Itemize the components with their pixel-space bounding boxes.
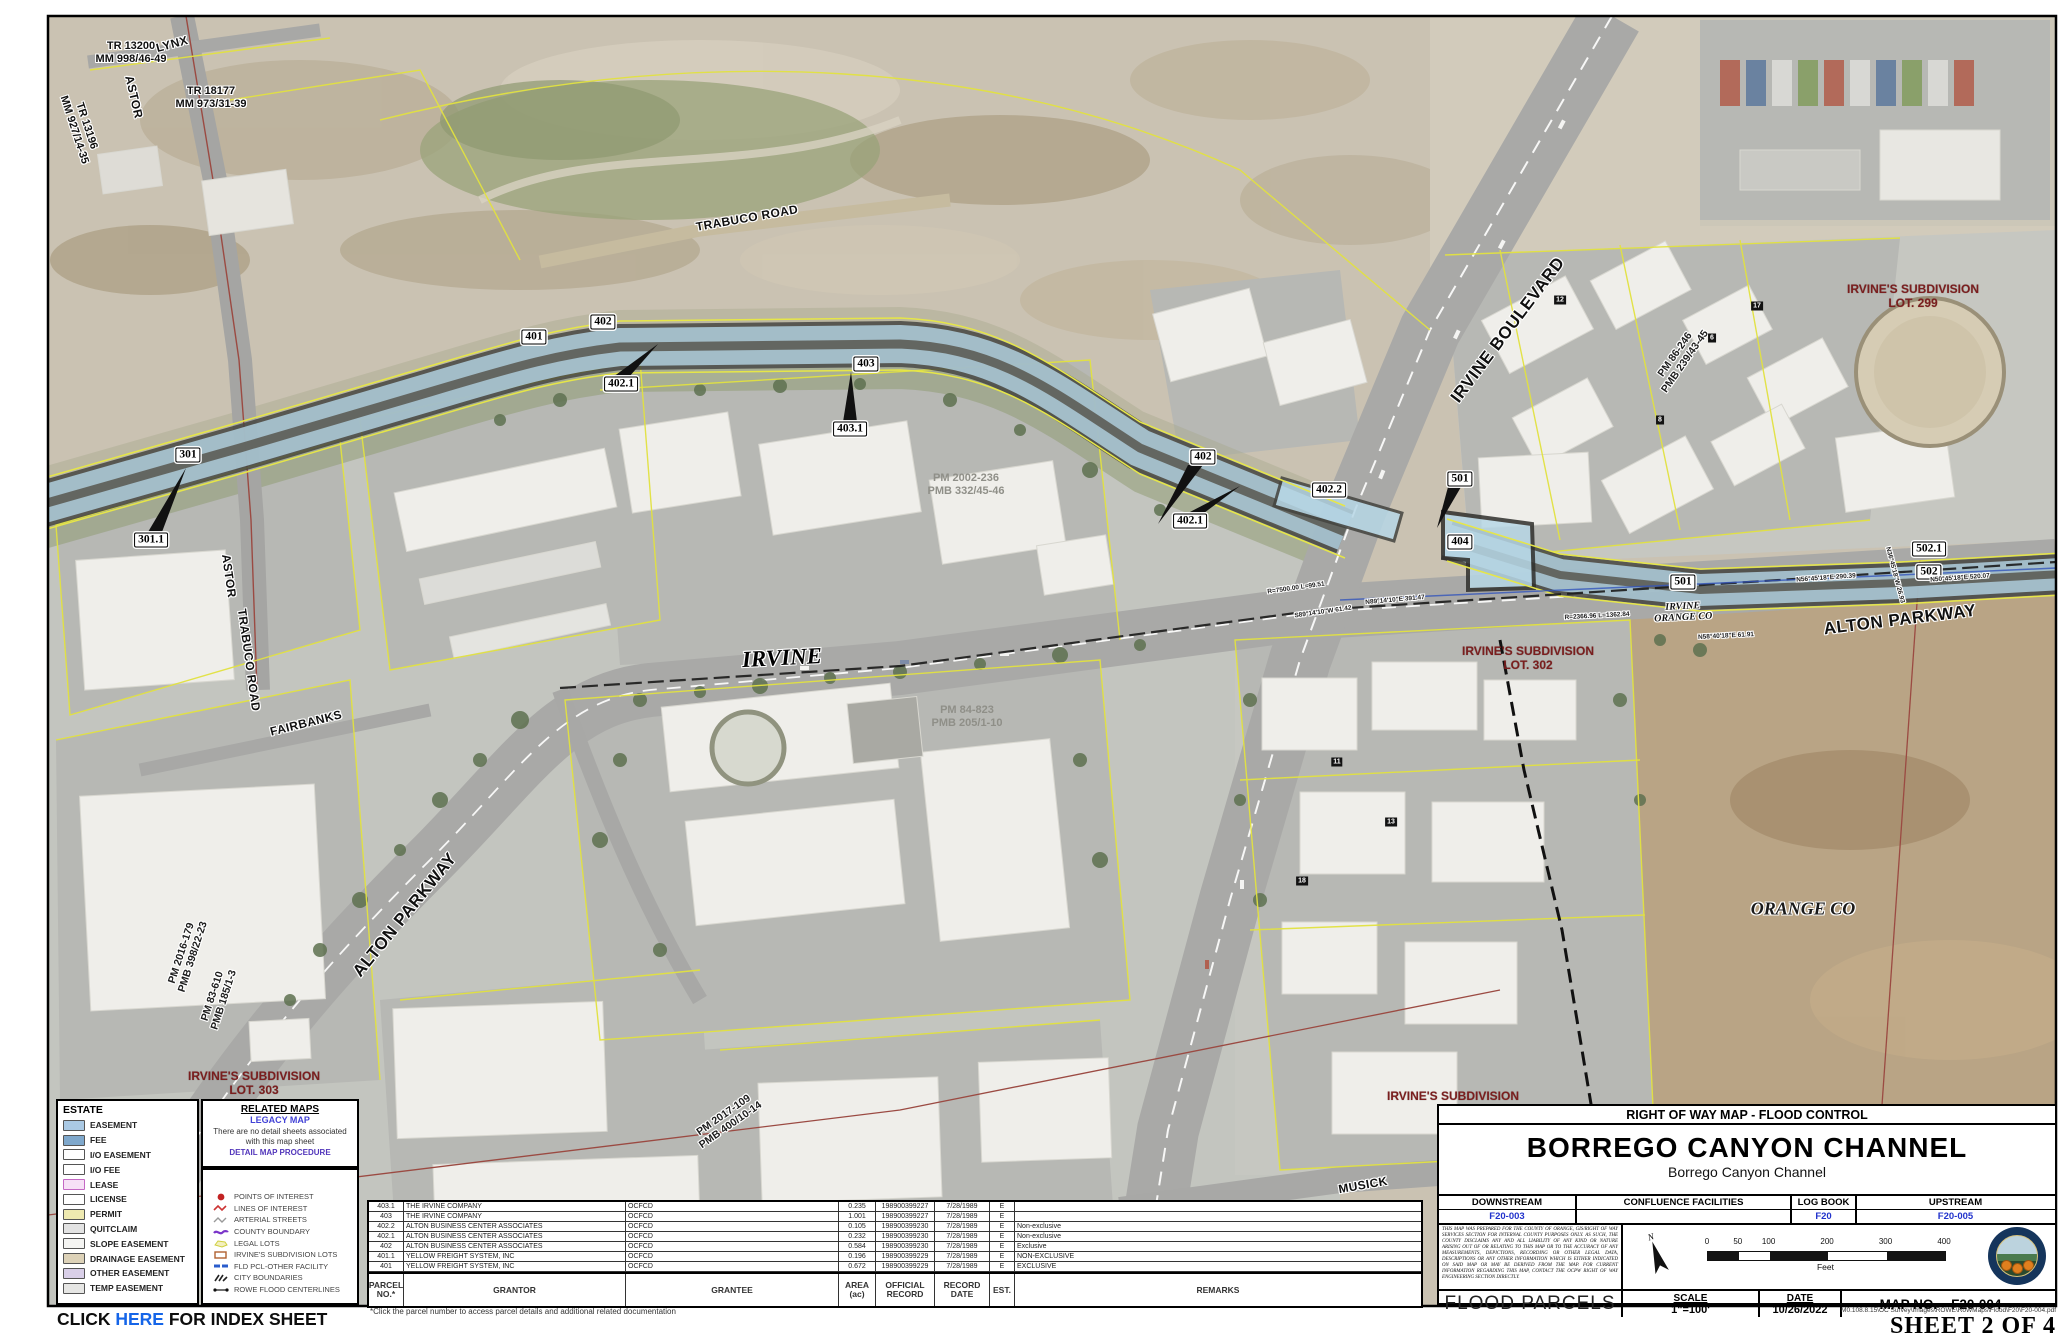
table-row: 401.1YELLOW FREIGHT SYSTEM, INCOCFCD0.19… bbox=[369, 1252, 1421, 1262]
est-cell: E bbox=[990, 1202, 1015, 1212]
estate-item-label: OTHER EASEMENT bbox=[90, 1268, 169, 1278]
estate-item: LEASE bbox=[62, 1177, 193, 1192]
channel-title: BORREGO CANYON CHANNEL bbox=[1439, 1132, 2055, 1164]
lot-marker: 17 bbox=[1751, 302, 1763, 311]
estate-swatch bbox=[63, 1149, 85, 1160]
table-row: 403THE IRVINE COMPANYOCFCD1.001198900399… bbox=[369, 1212, 1421, 1222]
estate-item: LICENSE bbox=[62, 1192, 193, 1207]
parcel-label-402.1[interactable]: 402.1 bbox=[1173, 514, 1207, 529]
grantor-cell: ALTON BUSINESS CENTER ASSOCIATES bbox=[404, 1222, 626, 1232]
record-date-cell: 7/28/1989 bbox=[935, 1202, 990, 1212]
estate-item: SLOPE EASEMENT bbox=[62, 1236, 193, 1251]
official-record-link[interactable]: 198900399230 bbox=[876, 1232, 935, 1242]
table-row: 401YELLOW FREIGHT SYSTEM, INCOCFCD0.6721… bbox=[369, 1262, 1421, 1272]
sheet-content-type: FLOOD PARCELS bbox=[1444, 1293, 1615, 1315]
area-cell: 0.584 bbox=[839, 1242, 876, 1252]
street-label: FAIRBANKS bbox=[269, 707, 344, 738]
grantor-cell: YELLOW FREIGHT SYSTEM, INC bbox=[404, 1262, 626, 1272]
symbol-item: ROWE FLOOD CENTERLINES bbox=[213, 1284, 353, 1296]
grantor-cell: ALTON BUSINESS CENTER ASSOCIATES bbox=[404, 1232, 626, 1242]
estate-item-label: LICENSE bbox=[90, 1194, 127, 1204]
date-value: 10/26/2022 bbox=[1772, 1304, 1827, 1316]
grantor-cell: THE IRVINE COMPANY bbox=[404, 1212, 626, 1222]
parcel-map-ref: PM 2017-109 PMB 400/10-14 bbox=[690, 1089, 764, 1151]
scalebar-segment bbox=[1708, 1252, 1739, 1260]
record-date-cell: 7/28/1989 bbox=[935, 1212, 990, 1222]
parcel-label-501[interactable]: 501 bbox=[1670, 575, 1695, 590]
scalebar-segment bbox=[1887, 1252, 1945, 1260]
remarks-cell: Exclusive bbox=[1015, 1242, 1421, 1252]
street-label: TRABUCO ROAD bbox=[235, 608, 263, 712]
area-cell: 1.001 bbox=[839, 1212, 876, 1222]
est-cell: E bbox=[990, 1252, 1015, 1262]
est-cell: E bbox=[990, 1222, 1015, 1232]
est-cell: E bbox=[990, 1212, 1015, 1222]
parcel-link[interactable]: 402.1 bbox=[369, 1232, 404, 1242]
estate-swatch bbox=[63, 1179, 85, 1190]
symbols-legend: POINTS OF INTERESTLINES OF INTERESTARTER… bbox=[201, 1168, 359, 1305]
street-label: TRABUCO ROAD bbox=[695, 202, 799, 234]
related-maps-panel: RELATED MAPS LEGACY MAP There are no det… bbox=[201, 1099, 359, 1168]
north-arrow-icon: N bbox=[1639, 1229, 1673, 1277]
remarks-cell bbox=[1015, 1202, 1421, 1212]
grantee-cell: OCFCD bbox=[626, 1222, 839, 1232]
parcel-link[interactable]: 401.1 bbox=[369, 1252, 404, 1262]
subdivision-label: IRVINE'S SUBDIVISION bbox=[1387, 1089, 1519, 1103]
estate-item: DRAINAGE EASEMENT bbox=[62, 1251, 193, 1266]
symbol-item-label: FLD PCL-OTHER FACILITY bbox=[234, 1262, 328, 1271]
bearing-text: N58°40'18"E 61.91 bbox=[1698, 631, 1754, 641]
estate-swatch bbox=[63, 1223, 85, 1234]
subdivision-label: IRVINE'S SUBDIVISION LOT. 302 bbox=[1462, 644, 1594, 672]
estate-item: OTHER EASEMENT bbox=[62, 1266, 193, 1281]
estate-items: EASEMENTFEEI/O EASEMENTI/O FEELEASELICEN… bbox=[62, 1118, 193, 1296]
symbol-items: POINTS OF INTERESTLINES OF INTERESTARTER… bbox=[213, 1191, 353, 1295]
symbol-item-label: IRVINE'S SUBDIVISION LOTS bbox=[234, 1250, 337, 1259]
parcel-link[interactable]: 402.2 bbox=[369, 1222, 404, 1232]
lines-icon bbox=[213, 1203, 231, 1213]
symbol-item: IRVINE'S SUBDIVISION LOTS bbox=[213, 1249, 353, 1261]
related-maps-title: RELATED MAPS bbox=[208, 1104, 352, 1115]
column-header: RECORD DATE bbox=[935, 1274, 990, 1306]
subdiv-icon bbox=[213, 1250, 231, 1260]
estate-swatch bbox=[63, 1253, 85, 1264]
sheet-number: SHEET 2 OF 4 bbox=[1890, 1313, 2056, 1340]
table-row: 402ALTON BUSINESS CENTER ASSOCIATESOCFCD… bbox=[369, 1242, 1421, 1252]
county-label: ORANGE CO bbox=[1751, 899, 1856, 920]
bearing-text: N36°45'18"W 26.93 bbox=[1884, 546, 1906, 604]
estate-item-label: I/O FEE bbox=[90, 1165, 120, 1175]
table-row: 403.1THE IRVINE COMPANYOCFCD0.2351989003… bbox=[369, 1202, 1421, 1212]
index-link-prefix: CLICK bbox=[57, 1309, 115, 1329]
title-block: RIGHT OF WAY MAP - FLOOD CONTROL BORREGO… bbox=[1437, 1104, 2057, 1305]
scalebar-tick: 200 bbox=[1820, 1237, 1833, 1246]
table-header-row: PARCEL NO.*GRANTORGRANTEEAREA (ac)OFFICI… bbox=[369, 1272, 1421, 1306]
symbol-item: COUNTY BOUNDARY bbox=[213, 1226, 353, 1238]
parcel-label-402[interactable]: 402 bbox=[1190, 450, 1215, 465]
detail-map-procedure-link[interactable]: DETAIL MAP PROCEDURE bbox=[208, 1148, 352, 1157]
scalebar-tick: 300 bbox=[1879, 1237, 1892, 1246]
scalebar-tick: 50 bbox=[1733, 1237, 1742, 1246]
estate-swatch bbox=[63, 1283, 85, 1294]
symbol-item-label: ROWE FLOOD CENTERLINES bbox=[234, 1285, 340, 1294]
estate-item-label: LEASE bbox=[90, 1180, 118, 1190]
subdivision-label: IRVINE'S SUBDIVISION LOT. 299 bbox=[1847, 282, 1979, 310]
scale-bar bbox=[1707, 1251, 1946, 1261]
lot-marker: 12 bbox=[1554, 296, 1566, 305]
estate-item-label: SLOPE EASEMENT bbox=[90, 1239, 168, 1249]
fldpcl-icon bbox=[213, 1261, 231, 1271]
area-cell: 0.235 bbox=[839, 1202, 876, 1212]
index-sheet-link-row: CLICK HERE FOR INDEX SHEET bbox=[57, 1309, 327, 1330]
date-label: DATE bbox=[1787, 1293, 1813, 1304]
remarks-cell: NON-EXCLUSIVE bbox=[1015, 1252, 1421, 1262]
street-label: ALTON PARKWAY bbox=[349, 849, 461, 981]
legal-icon bbox=[213, 1238, 231, 1248]
grantee-cell: OCFCD bbox=[626, 1242, 839, 1252]
parcel-map-ref: PM 2016-179 PMB 398/22-23 bbox=[164, 916, 210, 993]
scale-value: 1"=100' bbox=[1671, 1304, 1710, 1316]
scalebar-unit: Feet bbox=[1707, 1262, 1944, 1272]
symbol-item: POINTS OF INTEREST bbox=[213, 1191, 353, 1203]
street-label: ALTON PARKWAY bbox=[1823, 601, 1978, 640]
symbol-item-label: COUNTY BOUNDARY bbox=[234, 1227, 310, 1236]
parcel-map-ref: PM 83-610 PMB 185/1-3 bbox=[197, 965, 239, 1031]
bearing-text: N89°14'10"E 391.47 bbox=[1365, 594, 1425, 606]
table-row: 402.1ALTON BUSINESS CENTER ASSOCIATESOCF… bbox=[369, 1232, 1421, 1242]
street-label: MUSICK bbox=[1337, 1174, 1388, 1196]
estate-item-label: QUITCLAIM bbox=[90, 1224, 137, 1234]
county-of-orange-seal bbox=[1988, 1227, 2046, 1285]
parcel-map-ref: PM 84-823 PMB 205/1-10 bbox=[932, 704, 1003, 730]
official-record-link[interactable]: 198900399230 bbox=[876, 1222, 935, 1232]
symbol-item: FLD PCL-OTHER FACILITY bbox=[213, 1261, 353, 1273]
grantee-cell: OCFCD bbox=[626, 1252, 839, 1262]
estate-item-label: TEMP EASEMENT bbox=[90, 1283, 163, 1293]
area-cell: 0.232 bbox=[839, 1232, 876, 1242]
tract-ref: TR 13196 MM 927/14-35 bbox=[57, 90, 104, 166]
record-date-cell: 7/28/1989 bbox=[935, 1262, 990, 1272]
estate-swatch bbox=[63, 1194, 85, 1205]
scalebar-segment bbox=[1770, 1252, 1828, 1260]
remarks-cell bbox=[1015, 1212, 1421, 1222]
channel-subtitle: Borrego Canyon Channel bbox=[1439, 1164, 2055, 1180]
parcel-label-402[interactable]: 402 bbox=[590, 315, 615, 330]
est-cell: E bbox=[990, 1232, 1015, 1242]
logbook-label: LOG BOOK bbox=[1792, 1196, 1857, 1209]
map-type-header: RIGHT OF WAY MAP - FLOOD CONTROL bbox=[1439, 1106, 2055, 1125]
parcel-map-ref: PM 2002-236 PMB 332/45-46 bbox=[927, 472, 1004, 498]
column-header: REMARKS bbox=[1015, 1274, 1421, 1306]
arterial-icon bbox=[213, 1215, 231, 1225]
symbol-item: CITY BOUNDARIES bbox=[213, 1272, 353, 1284]
parcel-label-403[interactable]: 403 bbox=[853, 357, 878, 372]
poi-icon bbox=[213, 1192, 231, 1202]
bearing-text: R=7500.00 L=99.51 bbox=[1267, 581, 1325, 596]
parcel-map-ref: PM 86-246 PMB 239/43-45 bbox=[1649, 321, 1711, 395]
lot-marker: 6 bbox=[1708, 334, 1716, 343]
area-cell: 0.196 bbox=[839, 1252, 876, 1262]
official-record-link[interactable]: 198900399229 bbox=[876, 1252, 935, 1262]
grantee-cell: OCFCD bbox=[626, 1202, 839, 1212]
related-maps-note: There are no detail sheets associated wi… bbox=[208, 1127, 352, 1146]
scale-label: SCALE bbox=[1674, 1293, 1708, 1304]
grantor-cell: ALTON BUSINESS CENTER ASSOCIATES bbox=[404, 1242, 626, 1252]
record-date-cell: 7/28/1989 bbox=[935, 1242, 990, 1252]
estate-item: PERMIT bbox=[62, 1207, 193, 1222]
bearing-text: R=2366.96 L=1362.84 bbox=[1564, 611, 1629, 621]
column-header: GRANTOR bbox=[404, 1274, 626, 1306]
scalebar-segment bbox=[1828, 1252, 1886, 1260]
estate-item: I/O FEE bbox=[62, 1162, 193, 1177]
est-cell: E bbox=[990, 1242, 1015, 1252]
symbol-item-label: POINTS OF INTEREST bbox=[234, 1192, 314, 1201]
upstream-map-link[interactable]: F20-005 bbox=[1857, 1210, 2054, 1223]
subdivision-label: IRVINE'S SUBDIVISION LOT. 303 bbox=[188, 1069, 320, 1097]
parcel-table-footnote: *Click the parcel number to access parce… bbox=[370, 1307, 676, 1316]
estate-swatch bbox=[63, 1238, 85, 1249]
city-label: IRVINE bbox=[741, 643, 822, 673]
row-map-sheet: 301301.1401402402.1403403.1402402.1402.2… bbox=[0, 0, 2070, 1341]
record-date-cell: 7/28/1989 bbox=[935, 1252, 990, 1262]
bearing-text: S89°14'10"W 61.42 bbox=[1294, 605, 1352, 620]
symbol-item-label: CITY BOUNDARIES bbox=[234, 1273, 303, 1282]
estate-swatch bbox=[63, 1164, 85, 1175]
logbook-link[interactable]: F20 bbox=[1792, 1210, 1857, 1223]
estate-swatch bbox=[63, 1135, 85, 1146]
confluence-value bbox=[1577, 1210, 1792, 1223]
rowe-icon bbox=[213, 1285, 231, 1295]
scalebar-tick: 0 bbox=[1705, 1237, 1709, 1246]
grantee-cell: OCFCD bbox=[626, 1212, 839, 1222]
symbol-item-label: LINES OF INTEREST bbox=[234, 1204, 307, 1213]
downstream-map-link[interactable]: F20-003 bbox=[1439, 1210, 1577, 1223]
estate-item: I/O EASEMENT bbox=[62, 1148, 193, 1163]
record-date-cell: 7/28/1989 bbox=[935, 1222, 990, 1232]
tract-ref: TR 13200 MM 998/46-49 bbox=[96, 40, 167, 66]
street-label: ASTOR bbox=[122, 74, 145, 120]
street-label: IRVINE BOULEVARD bbox=[1447, 253, 1570, 406]
symbol-item-label: ARTERIAL STREETS bbox=[234, 1215, 307, 1224]
column-header: EST. bbox=[990, 1274, 1015, 1306]
confluence-label: CONFLUENCE FACILITIES bbox=[1577, 1196, 1792, 1209]
tract-ref: TR 18177 MM 973/31-39 bbox=[176, 85, 247, 111]
official-record-link[interactable]: 198900399229 bbox=[876, 1262, 935, 1272]
disclaimer-text: THIS MAP WAS PREPARED FOR THE COUNTY OF … bbox=[1439, 1225, 1623, 1289]
official-record-link[interactable]: 198900399227 bbox=[876, 1212, 935, 1222]
bearing-text: N56°45'18"E 290.39 bbox=[1796, 572, 1856, 583]
estate-item: TEMP EASEMENT bbox=[62, 1281, 193, 1296]
estate-item-label: PERMIT bbox=[90, 1209, 122, 1219]
column-header: OFFICIAL RECORD bbox=[876, 1274, 935, 1306]
street-label: ASTOR bbox=[219, 553, 239, 598]
legacy-map-link[interactable]: LEGACY MAP bbox=[208, 1115, 352, 1125]
parcel-label-301[interactable]: 301 bbox=[175, 448, 200, 463]
scalebar-segment bbox=[1739, 1252, 1770, 1260]
table-row: 402.2ALTON BUSINESS CENTER ASSOCIATESOCF… bbox=[369, 1222, 1421, 1232]
estate-item-label: FEE bbox=[90, 1135, 107, 1145]
estate-item-label: DRAINAGE EASEMENT bbox=[90, 1254, 185, 1264]
downstream-label: DOWNSTREAM bbox=[1439, 1196, 1577, 1209]
index-sheet-link[interactable]: HERE bbox=[115, 1309, 164, 1329]
parcel-link[interactable]: 403.1 bbox=[369, 1202, 404, 1212]
parcel-label-404[interactable]: 404 bbox=[1447, 535, 1472, 550]
lot-marker: 13 bbox=[1385, 818, 1397, 827]
upstream-label: UPSTREAM bbox=[1857, 1196, 2054, 1209]
estate-item: EASEMENT bbox=[62, 1118, 193, 1133]
grantee-cell: OCFCD bbox=[626, 1262, 839, 1272]
estate-legend: ESTATE EASEMENTFEEI/O EASEMENTI/O FEELEA… bbox=[56, 1099, 199, 1305]
svg-text:N: N bbox=[1645, 1231, 1656, 1243]
county-icon bbox=[213, 1227, 231, 1237]
estate-item-label: EASEMENT bbox=[90, 1120, 137, 1130]
estate-legend-title: ESTATE bbox=[63, 1104, 193, 1116]
parcel-label-402.2[interactable]: 402.2 bbox=[1312, 483, 1346, 498]
parcel-label-401[interactable]: 401 bbox=[521, 330, 546, 345]
symbol-item: LINES OF INTEREST bbox=[213, 1203, 353, 1215]
official-record-link[interactable]: 198900399230 bbox=[876, 1242, 935, 1252]
grantee-cell: OCFCD bbox=[626, 1232, 839, 1242]
official-record-link[interactable]: 198900399227 bbox=[876, 1202, 935, 1212]
remarks-cell: Non-exclusive bbox=[1015, 1232, 1421, 1242]
remarks-cell: EXCLUSIVE bbox=[1015, 1262, 1421, 1272]
parcel-table: 403.1THE IRVINE COMPANYOCFCD0.2351989003… bbox=[367, 1200, 1423, 1308]
scalebar-ticks: 050100200300400 bbox=[1707, 1237, 1944, 1247]
parcel-link[interactable]: 403 bbox=[369, 1212, 404, 1222]
area-cell: 0.105 bbox=[839, 1222, 876, 1232]
parcel-label-402.1[interactable]: 402.1 bbox=[604, 377, 638, 392]
grantor-cell: THE IRVINE COMPANY bbox=[404, 1202, 626, 1212]
parcel-link[interactable]: 401 bbox=[369, 1262, 404, 1272]
parcel-label-502.1[interactable]: 502.1 bbox=[1912, 542, 1946, 557]
record-date-cell: 7/28/1989 bbox=[935, 1232, 990, 1242]
parcel-link[interactable]: 402 bbox=[369, 1242, 404, 1252]
estate-swatch bbox=[63, 1209, 85, 1220]
index-link-suffix: FOR INDEX SHEET bbox=[164, 1309, 327, 1329]
area-cell: 0.672 bbox=[839, 1262, 876, 1272]
lot-marker: 18 bbox=[1296, 877, 1308, 886]
lot-marker: 8 bbox=[1656, 416, 1664, 425]
est-cell: E bbox=[990, 1262, 1015, 1272]
city-icon bbox=[213, 1273, 231, 1283]
parcel-label-501[interactable]: 501 bbox=[1447, 472, 1472, 487]
parcel-label-403.1[interactable]: 403.1 bbox=[833, 422, 867, 437]
column-header: PARCEL NO.* bbox=[369, 1274, 404, 1306]
estate-swatch bbox=[63, 1120, 85, 1131]
symbol-item: ARTERIAL STREETS bbox=[213, 1214, 353, 1226]
parcel-label-301.1[interactable]: 301.1 bbox=[134, 533, 168, 548]
grantor-cell: YELLOW FREIGHT SYSTEM, INC bbox=[404, 1252, 626, 1262]
column-header: AREA (ac) bbox=[839, 1274, 876, 1306]
scalebar-tick: 400 bbox=[1937, 1237, 1950, 1246]
column-header: GRANTEE bbox=[626, 1274, 839, 1306]
symbol-item: LEGAL LOTS bbox=[213, 1237, 353, 1249]
estate-item: QUITCLAIM bbox=[62, 1222, 193, 1237]
estate-swatch bbox=[63, 1268, 85, 1279]
boundary-label: IRVINE ORANGE CO bbox=[1653, 599, 1712, 624]
remarks-cell: Non-exclusive bbox=[1015, 1222, 1421, 1232]
estate-item-label: I/O EASEMENT bbox=[90, 1150, 151, 1160]
estate-item: FEE bbox=[62, 1133, 193, 1148]
scalebar-tick: 100 bbox=[1762, 1237, 1775, 1246]
lot-marker: 11 bbox=[1331, 758, 1342, 767]
symbol-item-label: LEGAL LOTS bbox=[234, 1239, 280, 1248]
